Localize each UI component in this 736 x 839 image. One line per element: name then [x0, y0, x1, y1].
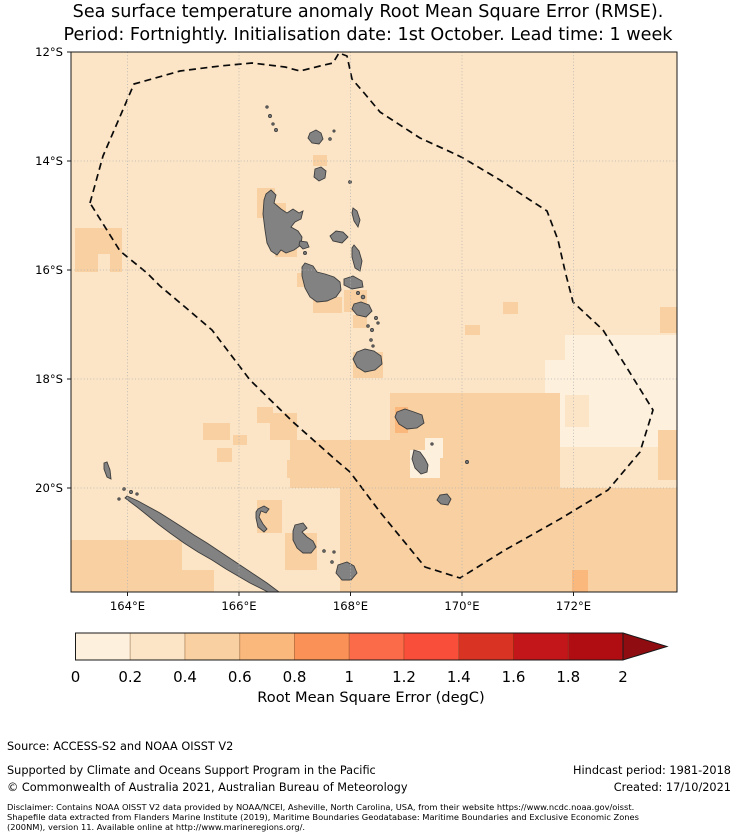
colorbar-segment [240, 633, 295, 660]
lon-tick-label: 166°E [221, 599, 256, 613]
lon-tick-label: 170°E [444, 599, 479, 613]
colorbar-segment [295, 633, 350, 660]
island-tiga [323, 550, 326, 553]
island-malo-islet [304, 252, 307, 255]
colorbar-segment [185, 633, 240, 660]
rmse-cell [75, 254, 98, 272]
rmse-cell [75, 228, 122, 254]
map-figure: 164°E166°E168°E170°E172°E12°S14°S16°S18°… [0, 0, 736, 730]
colorbar-tick-label: 0 [71, 668, 81, 686]
colorbar-segment [404, 633, 459, 660]
island-nc-islet-4 [118, 498, 120, 500]
rmse-cell [287, 460, 303, 478]
lat-tick-label: 12°S [35, 45, 63, 59]
colorbar-segment [349, 633, 404, 660]
colorbar-caption: Root Mean Square Error (degC) [257, 689, 484, 706]
island-shepherd-6 [372, 345, 374, 347]
island-nc-islet-2 [130, 491, 133, 494]
colorbar-extend-arrow [623, 633, 667, 660]
lon-tick-label: 168°E [333, 599, 368, 613]
colorbar-tick-label: 1.4 [447, 668, 471, 686]
rmse-cell [270, 413, 297, 440]
rmse-cell [340, 488, 677, 592]
colorbar-tick-label: 0.2 [118, 668, 142, 686]
rmse-cell [203, 423, 230, 440]
island-banks-1 [329, 138, 332, 141]
island-torres-4 [275, 129, 278, 132]
lat-tick-label: 20°S [35, 481, 63, 495]
lat-tick-label: 18°S [35, 372, 63, 386]
island-loyalty-islet-1 [333, 551, 335, 553]
rmse-cell [150, 540, 182, 572]
colorbar-segment [130, 633, 185, 660]
rmse-cell [545, 335, 565, 360]
source-line: Source: ACCESS-S2 and NOAA OISST V2 [7, 740, 233, 753]
rmse-cell [658, 430, 677, 480]
disclaimer-line-2: Shapefile data extracted from Flanders M… [7, 812, 639, 822]
colorbar-tick-label: 1.2 [392, 668, 416, 686]
colorbar-tick-label: 1.6 [502, 668, 526, 686]
colorbar-segment [76, 633, 131, 660]
colorbar-tick-label: 0.6 [228, 668, 252, 686]
island-aniwa [431, 443, 433, 445]
island-futuna [466, 461, 469, 464]
colorbar-tick-label: 0.8 [283, 668, 307, 686]
lon-tick-label: 164°E [110, 599, 145, 613]
island-shepherd-5 [370, 339, 373, 342]
rmse-cell [217, 448, 232, 462]
colorbar-tick-label: 0.4 [173, 668, 197, 686]
disclaimer-line-1: Disclaimer: Contains NOAA OISST V2 data … [7, 802, 639, 812]
rmse-cell [313, 155, 327, 166]
island-loyalty-islet-2 [331, 561, 334, 564]
island-shepherd-2 [377, 322, 379, 324]
rmse-cell [565, 395, 589, 427]
rmse-cell [660, 307, 677, 333]
rmse-cell [503, 302, 518, 314]
disclaimer-line-3: (200NM), version 11. Available online at… [7, 822, 639, 832]
island-torres-1 [266, 106, 268, 108]
supported-line: Supported by Climate and Oceans Support … [7, 764, 376, 777]
colorbar-tick-labels: 00.20.40.60.811.21.41.61.82 [71, 668, 628, 686]
island-torres-3 [272, 123, 274, 125]
colorbar-segment [459, 633, 514, 660]
island-torres-2 [269, 115, 272, 118]
island-shepherd-3 [367, 325, 370, 328]
colorbar-tick-label: 2 [618, 668, 628, 686]
rmse-cell [233, 435, 247, 445]
colorbar-tick-label: 1 [344, 668, 354, 686]
colorbar-segment [568, 633, 623, 660]
island-shepherd-4 [371, 329, 374, 332]
rmse-cell [465, 325, 480, 335]
rmse-cell [290, 440, 395, 488]
lat-tick-label: 16°S [35, 263, 63, 277]
lat-tick-label: 14°S [35, 154, 63, 168]
island-lopevi [361, 295, 365, 299]
island-mere-lava [349, 181, 352, 184]
map-canvas [70, 52, 677, 601]
island-nc-islet-3 [136, 493, 138, 495]
island-gaua [314, 167, 326, 181]
rmse-cell [110, 254, 122, 272]
created-date: Created: 17/10/2021 [614, 781, 731, 794]
colorbar: 00.20.40.60.811.21.41.61.82 Root Mean Sq… [71, 633, 667, 706]
lon-tick-label: 172°E [556, 599, 591, 613]
colorbar-segments [76, 633, 624, 660]
colorbar-segment [514, 633, 569, 660]
colorbar-tick-label: 1.8 [556, 668, 580, 686]
rmse-cell [176, 570, 214, 592]
rmse-cell [572, 570, 588, 592]
disclaimer: Disclaimer: Contains NOAA OISST V2 data … [7, 802, 639, 832]
island-shepherd-1 [375, 317, 378, 320]
hindcast-period: Hindcast period: 1981-2018 [573, 764, 731, 777]
copyright-line: © Commonwealth of Australia 2021, Austra… [7, 781, 408, 794]
island-banks-2 [333, 130, 335, 132]
island-paama [357, 292, 360, 295]
